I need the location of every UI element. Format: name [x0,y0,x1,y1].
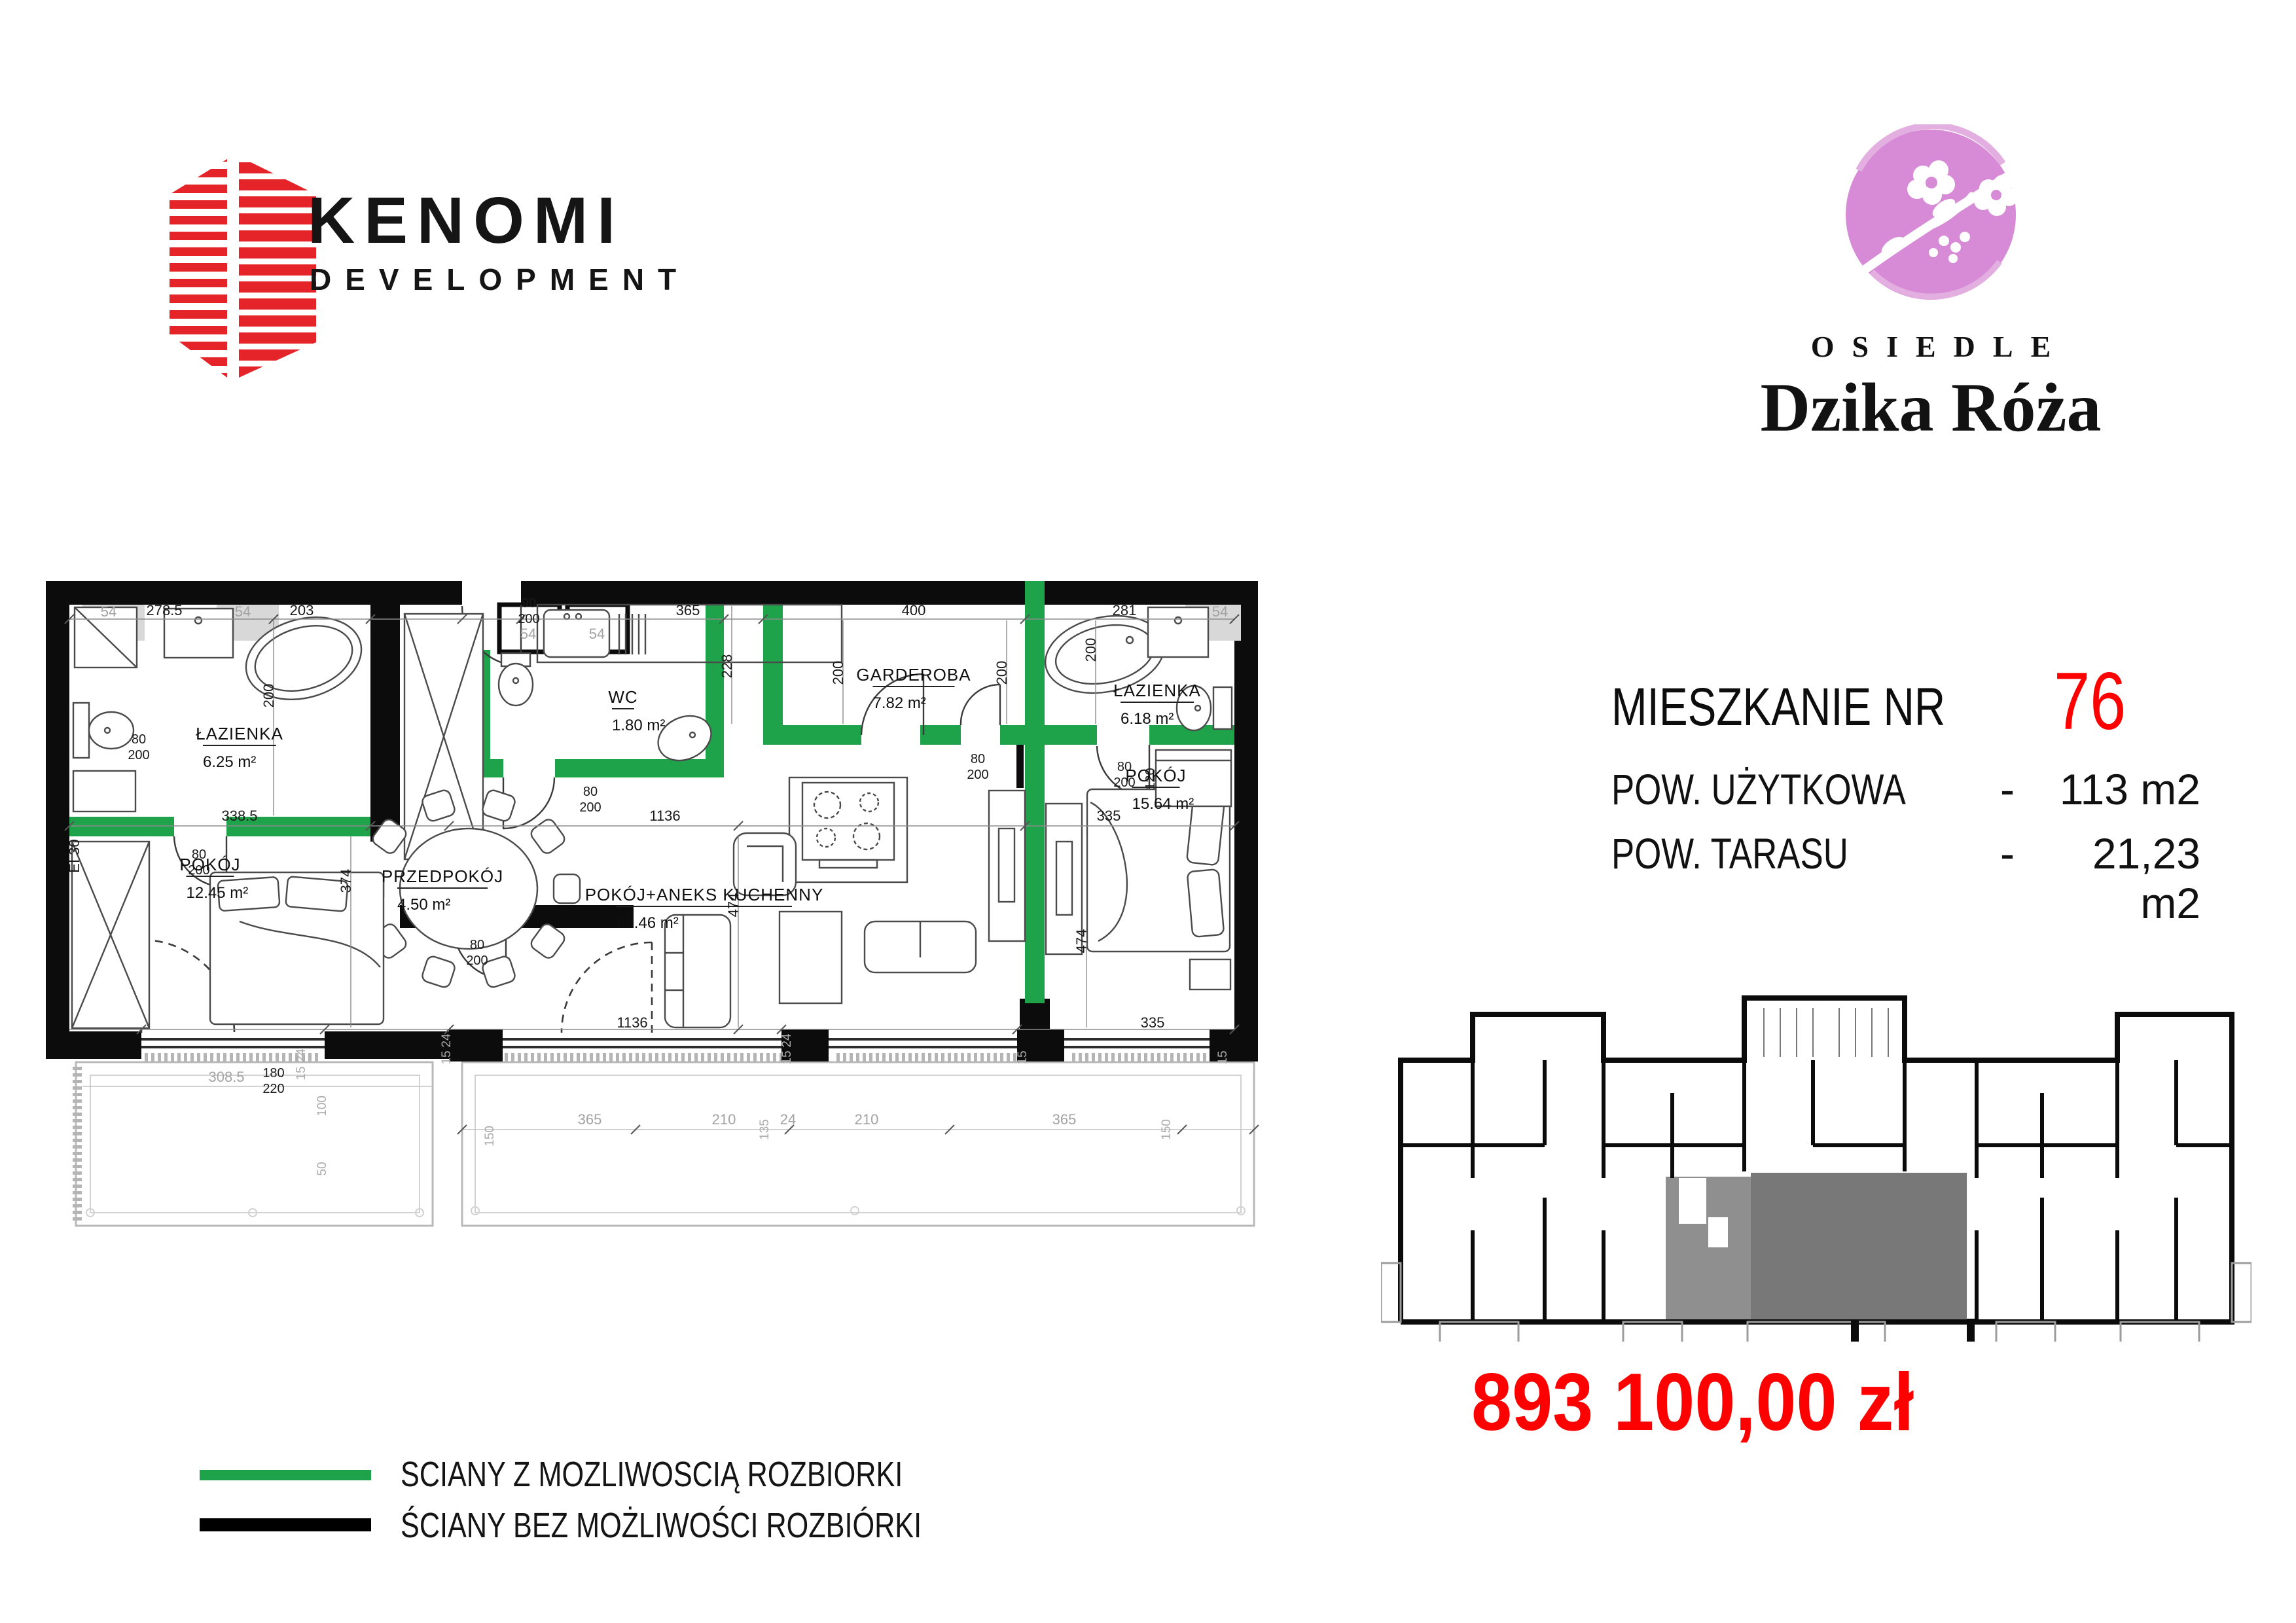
plan-label: 220 [262,1082,284,1096]
plan-label: POKÓJ+ANEKS KUCHENNY [585,885,824,904]
plan-label: ŁAZIENKA [196,724,283,743]
price: 893 100,00 zł [1471,1356,1964,1449]
glazing [141,1039,1254,1047]
plan-label: 200 [994,661,1010,685]
plan-label: 365 [1052,1111,1077,1128]
plan-label: 278.5 [146,602,182,618]
plan-label: 1136 [617,1014,647,1031]
plan-label: 24 [780,1111,796,1128]
plan-label: 210 [855,1111,879,1128]
plan-label: 200 [830,661,846,685]
plan-label: 200 [518,612,539,626]
plan-label: 54 [589,626,605,642]
plan-label: 200 [466,954,488,968]
separator: - [1978,764,2037,814]
plan-label: 4.50 m² [397,896,450,914]
area-row-terrace: POW. TARASU - 21,23 m2 [1611,829,2200,928]
area-summary: POW. UŻYTKOWA - 113 m2 POW. TARASU - 21,… [1611,764,2200,942]
stairwell [1764,1008,1888,1057]
plan-label: 335 [1141,1014,1165,1031]
estate-name: Dzika Róża [1728,368,2134,448]
plan-label: 80 [132,732,146,747]
plan-label: 203 [290,602,314,618]
kenomi-building-icon [160,134,324,389]
estate-logo: OSIEDLE Dzika Róża [1728,124,2134,448]
legend-label-black: ŚCIANY BEZ MOŻLIWOŚCI ROZBIÓRKI [401,1505,1052,1546]
building-mini-map [1381,982,2251,1342]
plan-label: 24 [780,1033,794,1048]
insulation-hatch [77,1058,1210,1222]
area-row-value: 113 m2 [2037,764,2200,814]
plan-label: POKÓJ [179,855,240,874]
plan-label: 200 [260,684,277,708]
plan-label: 54 [520,626,536,642]
highlighted-unit [1666,1173,1967,1319]
plan-label: 60.46 m² [617,914,679,932]
plan-label: 281 [1113,602,1137,618]
plan-label: 15 [295,1066,308,1080]
plan-label: 80 [971,752,985,766]
plan-label: 400 [902,602,926,618]
plan-label: 100 [315,1096,329,1116]
apartment-number: 76 [2054,655,2126,748]
plan-label: 6.18 m² [1121,710,1174,728]
plan-label: 54 [1212,603,1228,620]
separator: - [1978,829,2037,878]
plan-label: 135 [758,1119,772,1140]
plan-label: 150 [1160,1119,1174,1140]
plan-label: 7.82 m² [873,694,926,712]
plan-label: PRZEDPOKÓJ [382,866,503,886]
kenomi-subtitle: DEVELOPMENT [310,262,690,297]
plan-label: 15 [440,1050,454,1064]
plan-label: 24 [440,1033,454,1048]
plan-label: 54 [235,603,251,620]
plan-label: 365 [578,1111,602,1128]
plan-label: 200 [128,748,149,762]
plan-label: WC [608,687,637,707]
plan-label: 15 [1216,1050,1230,1064]
plan-label: 24 [295,1048,308,1063]
plan-label: 374 [338,869,354,893]
icon-right-face [239,156,316,378]
plan-label: 54 [101,603,117,620]
plan-label: 180 [262,1066,284,1080]
plan-label: 15 [780,1050,794,1064]
plan-label: 12.45 m² [187,884,249,902]
plan-label: 6.25 m² [203,753,256,771]
legend-swatch-green [200,1470,371,1480]
plan-label: GARDEROBA [856,665,971,685]
area-row-label: POW. TARASU [1611,829,1848,878]
plan-label: 200 [579,800,601,815]
legend-swatch-black [200,1518,371,1531]
plan-label: 15 [1016,1050,1030,1064]
plan-label: ŁAZIENKA [1113,681,1201,700]
apartment-title: MIESZKANIE NR76 [1611,651,2144,744]
plan-label: 228 [719,654,735,679]
plan-label: 15.64 m² [1132,795,1194,813]
plan-label: POKÓJ [1125,766,1186,785]
plan-label: 50 [315,1162,329,1175]
plan-label: 1.80 m² [612,717,665,734]
area-row-value: 21,23 m2 [2037,829,2200,928]
legend-label-green: SCIANY Z MOZLIWOSCIĄ ROZBIORKI [401,1454,1028,1495]
price-value: 893 100,00 zł [1471,1356,1914,1449]
plan-label: EI 30 [66,839,82,872]
blossom-icon [1728,124,2134,314]
plan-label: 308.5 [208,1069,244,1085]
icon-left-face [170,159,227,378]
kenomi-wordmark: KENOMI [308,183,624,259]
plan-label: 200 [1083,638,1099,662]
area-row-usable: POW. UŻYTKOWA - 113 m2 [1611,764,2200,814]
plan-label: 200 [967,768,988,782]
estate-word-osiedle: OSIEDLE [1728,329,2134,364]
plan-label: 335 [1097,808,1121,824]
floor-plan: 278.520390200365400281545454545420022820… [43,575,1287,1255]
plan-label: 1136 [649,808,680,824]
icon-gap [227,156,239,378]
area-row-label: POW. UŻYTKOWA [1611,764,1906,814]
plan-label: 210 [712,1111,736,1128]
plan-label: 338.5 [221,808,257,824]
plan-label: 80 [470,938,484,952]
apartment-title-label: MIESZKANIE NR [1611,677,1945,738]
plan-label: 365 [676,602,700,618]
plan-label: 90 [522,596,536,611]
plan-label: 80 [583,785,598,799]
kenomi-logo: KENOMI DEVELOPMENT [160,134,749,350]
plan-label: 150 [483,1126,497,1147]
plan-label: 474 [1073,929,1090,954]
